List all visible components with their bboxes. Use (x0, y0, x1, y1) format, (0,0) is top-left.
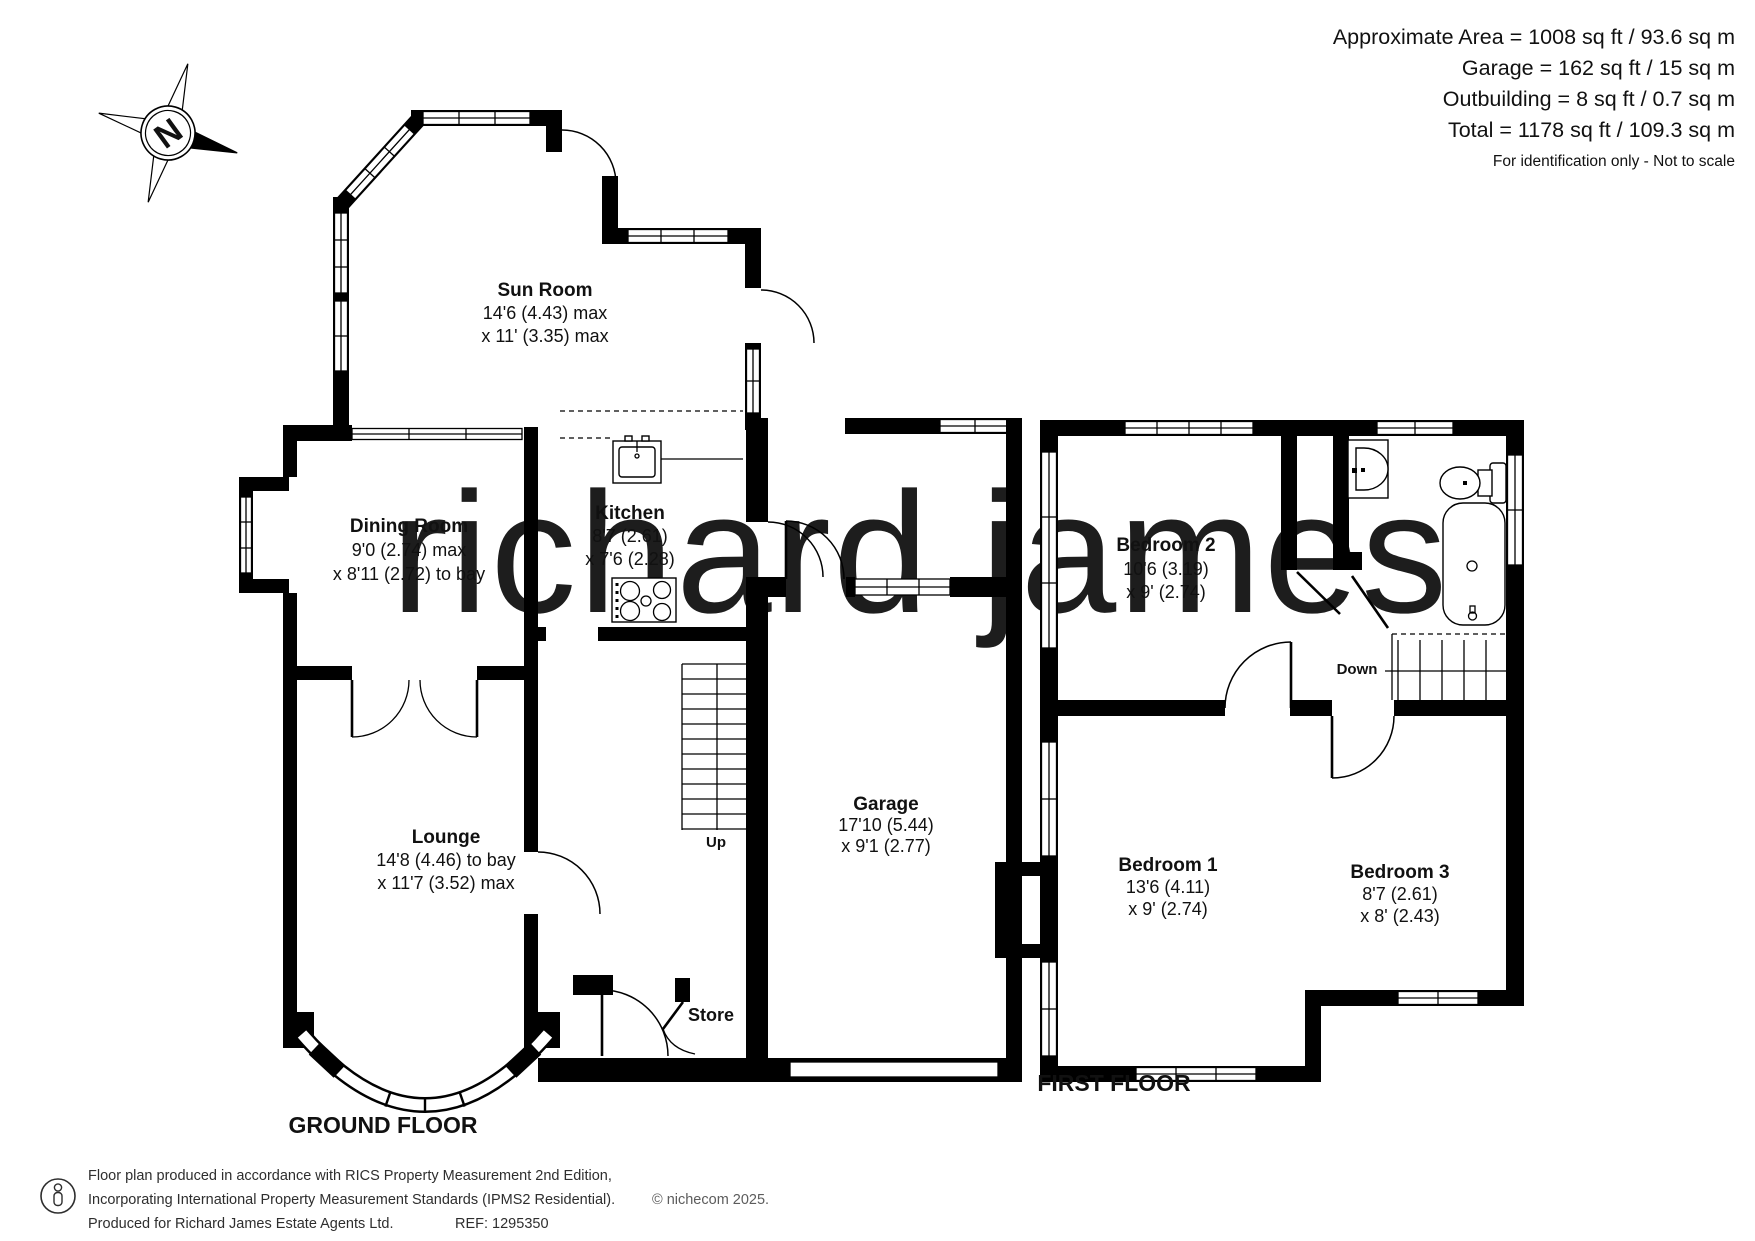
lounge-door-arc (538, 852, 600, 914)
bedroom2-label: Bedroom 2 (1116, 535, 1215, 556)
area-line-3: Outbuilding = 8 sq ft / 0.7 sq m (1443, 87, 1735, 111)
dining-room-label: Dining Room (350, 516, 468, 537)
sun-room-walls (333, 110, 814, 430)
compass-icon: N (79, 44, 257, 222)
footer-copyright: © nichecom 2025. (652, 1192, 769, 1208)
sun-room-dim2: x 11' (3.35) max (481, 326, 608, 346)
garage-label: Garage (853, 794, 918, 815)
kitchen-label: Kitchen (595, 503, 665, 524)
bedroom3-door-arc (1332, 716, 1394, 778)
bedroom3-label: Bedroom 3 (1350, 862, 1449, 883)
kitchen-dim1: 8'7 (2.61) (592, 526, 667, 546)
sun-room-door-arc (562, 130, 616, 184)
bedroom1-dim1: 13'6 (4.11) (1126, 877, 1210, 897)
lounge-dim1: 14'8 (4.46) to bay (376, 850, 516, 870)
lounge-bay-window (283, 1012, 560, 1113)
sun-room-back-door-arc (761, 290, 814, 343)
area-summary: Approximate Area = 1008 sq ft / 93.6 sq … (1333, 25, 1735, 170)
floorplan-canvas: richard james (0, 0, 1755, 1241)
garage-dim1: 17'10 (5.44) (838, 815, 934, 835)
lounge-label: Lounge (412, 827, 481, 848)
footer-line-3: Produced for Richard James Estate Agents… (88, 1216, 393, 1232)
footer-ref: REF: 1295350 (455, 1216, 549, 1232)
sun-room-label: Sun Room (498, 280, 593, 301)
front-door-arc (602, 990, 668, 1056)
first-floor-title: FIRST FLOOR (1037, 1070, 1191, 1096)
bathroom-sink-icon (1348, 440, 1388, 498)
kitchen-dim2: x 7'6 (2.28) (585, 549, 674, 569)
dining-room-dim2: x 8'11 (2.72) to bay (333, 564, 485, 584)
kitchen-hob-icon (612, 578, 676, 622)
ground-floor-title: GROUND FLOOR (288, 1112, 477, 1138)
area-line-4: Total = 1178 sq ft / 109.3 sq m (1448, 118, 1735, 142)
bedroom3-dim1: 8'7 (2.61) (1362, 884, 1437, 904)
bedroom1-dim2: x 9' (2.74) (1128, 899, 1207, 919)
toilet-icon (1440, 463, 1506, 503)
bedroom1-label: Bedroom 1 (1118, 855, 1218, 876)
area-line-2: Garage = 162 sq ft / 15 sq m (1462, 56, 1735, 80)
bedroom2-dim1: 10'6 (3.19) (1123, 559, 1209, 579)
down-label: Down (1337, 661, 1378, 678)
identification-note: For identification only - Not to scale (1493, 153, 1735, 170)
bedroom2-dim2: x 9' (2.74) (1126, 582, 1205, 602)
hallway-walls (524, 680, 695, 1056)
dining-lounge-double-doors (352, 680, 477, 737)
dining-room-dim1: 9'0 (2.74) max (352, 540, 467, 560)
area-line-1: Approximate Area = 1008 sq ft / 93.6 sq … (1333, 25, 1735, 49)
up-label: Up (706, 834, 726, 851)
bedroom3-dim2: x 8' (2.43) (1360, 906, 1439, 926)
staircase-up (682, 664, 752, 830)
person-scale-icon (41, 1179, 75, 1213)
garage-vehicle-door (790, 1062, 998, 1077)
store-door-leaf (663, 1002, 683, 1029)
lounge-dim2: x 11'7 (3.52) max (377, 873, 514, 893)
kitchen-sink-icon (613, 436, 661, 483)
sun-room-diagonal-window (335, 114, 425, 211)
footer: Floor plan produced in accordance with R… (41, 1168, 769, 1232)
footer-line-2: Incorporating International Property Mea… (88, 1192, 615, 1208)
store-label: Store (688, 1005, 734, 1025)
footer-line-1: Floor plan produced in accordance with R… (88, 1168, 612, 1184)
batht tub-icon (1443, 503, 1505, 625)
ground-bottom-wall (538, 1058, 1022, 1082)
bedroom1-door-arc (1225, 642, 1291, 708)
garage-dim2: x 9'1 (2.77) (841, 836, 930, 856)
sun-room-dim1: 14'6 (4.43) max (483, 303, 608, 323)
floorplan-page: richard james (0, 0, 1755, 1241)
